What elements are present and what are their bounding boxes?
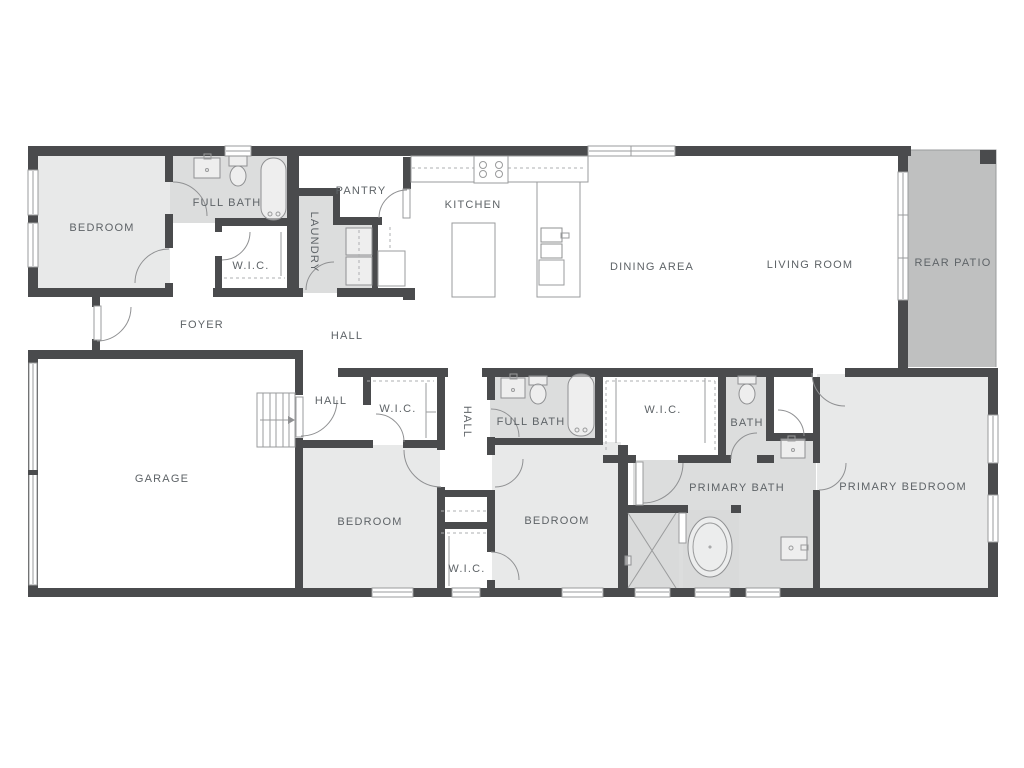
- front-door: [94, 306, 131, 341]
- label-foyer: FOYER: [180, 319, 224, 331]
- label-bedroom-right: BEDROOM: [524, 515, 589, 527]
- sink: [501, 374, 525, 398]
- window: [225, 146, 251, 156]
- stairs: [257, 393, 295, 447]
- window: [28, 170, 38, 215]
- shower-glass: [679, 513, 686, 543]
- window: [372, 588, 413, 597]
- window: [562, 588, 603, 597]
- label-garage: GARAGE: [135, 473, 189, 485]
- label-wic-primary: W.I.C.: [644, 404, 681, 416]
- kitchen-island: [452, 223, 495, 297]
- wic-top-door: [222, 232, 250, 260]
- label-rear-patio: REAR PATIO: [915, 257, 992, 269]
- label-wic-mid: W.I.C.: [379, 403, 416, 415]
- window: [988, 495, 998, 542]
- label-full-bath-top: FULL BATH: [193, 197, 262, 209]
- window: [695, 588, 730, 597]
- label-pantry: PANTRY: [336, 185, 387, 197]
- toilet: [738, 376, 756, 404]
- refrigerator: [378, 227, 405, 286]
- window: [635, 588, 670, 597]
- freestanding-tub: [688, 517, 732, 577]
- label-hall-lower: HALL: [315, 395, 347, 407]
- toilet: [229, 156, 247, 186]
- label-dining-area: DINING AREA: [610, 261, 694, 273]
- wic-mid-door: [376, 414, 404, 442]
- label-wic-top: W.I.C.: [232, 260, 269, 272]
- label-bedroom-top: BEDROOM: [69, 222, 134, 234]
- sliding-glass-door: [898, 172, 908, 300]
- linen-nook-door: [778, 410, 804, 436]
- label-bath: BATH: [730, 417, 763, 429]
- bathtub: [261, 158, 286, 220]
- garage-door: [28, 363, 38, 585]
- toilet: [529, 376, 547, 404]
- floor-plan-drawing: BEDROOM FULL BATH W.I.C. LAUNDRY PANTRY …: [0, 0, 1024, 768]
- window: [28, 223, 38, 267]
- label-primary-bedroom: PRIMARY BEDROOM: [839, 481, 967, 493]
- label-bedroom-left: BEDROOM: [337, 516, 402, 528]
- label-full-bath-lower: FULL BATH: [497, 416, 566, 428]
- window: [746, 588, 780, 597]
- label-hall-vertical: HALL: [461, 406, 473, 438]
- label-living-room: LIVING ROOM: [767, 259, 854, 271]
- label-wic-bottom: W.I.C.: [448, 563, 485, 575]
- sink: [781, 436, 805, 458]
- window: [452, 588, 480, 597]
- window: [988, 415, 998, 463]
- window: [588, 146, 675, 156]
- vanity-sink: [781, 537, 808, 560]
- sink: [194, 154, 220, 178]
- bathtub: [568, 374, 594, 436]
- label-laundry: LAUNDRY: [308, 212, 320, 273]
- cooktop: [474, 156, 508, 183]
- label-hall-upper: HALL: [331, 330, 363, 342]
- washer-dryer: [346, 228, 372, 285]
- label-primary-bath: PRIMARY BATH: [689, 482, 785, 494]
- label-kitchen: KITCHEN: [445, 199, 502, 211]
- floor-plan-page: BEDROOM FULL BATH W.I.C. LAUNDRY PANTRY …: [0, 0, 1024, 768]
